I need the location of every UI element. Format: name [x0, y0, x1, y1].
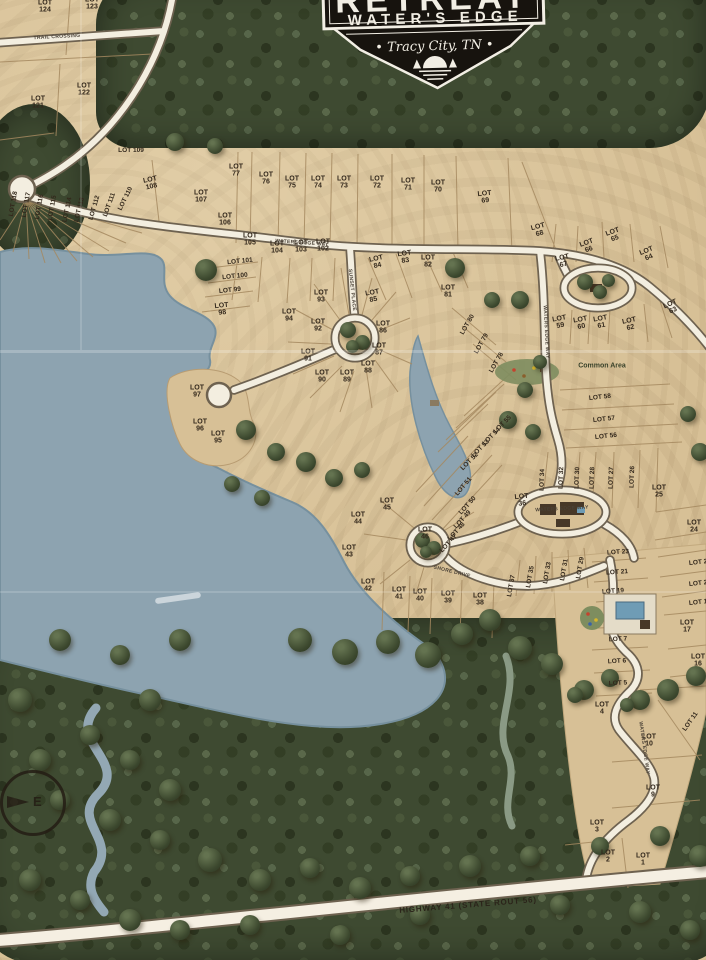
- logo-badge: RETREAT WATER'S EDGE • Tracy City, TN •: [316, 0, 551, 95]
- lot-label: LOT 11: [682, 711, 699, 732]
- lot-label: LOT106: [218, 213, 232, 226]
- lot-label: LOT45: [380, 498, 394, 511]
- lot-label: LOT72: [370, 176, 384, 189]
- lot-label: LOT 47: [439, 534, 458, 555]
- lot-label: LOT 28: [590, 467, 597, 489]
- street-label: WATERS EDGE WAY: [637, 721, 650, 775]
- lot-label: LOT92: [311, 319, 325, 332]
- lot-label: LOT94: [282, 309, 296, 322]
- lot-label: LOT 58: [589, 394, 612, 402]
- lot-label: LOT73: [337, 176, 351, 189]
- lot-label: LOT 114: [62, 197, 73, 223]
- lot-label: LOT 33: [543, 562, 553, 585]
- lot-label: LOT61: [593, 315, 609, 331]
- area-label: Common Area: [578, 363, 626, 370]
- lot-label: LOT82: [421, 255, 435, 268]
- lot-label: LOT 29: [576, 557, 586, 580]
- lot-label: LOT9: [646, 785, 660, 798]
- lot-label: LOT67: [555, 254, 571, 270]
- lot-label: LOT46: [418, 527, 432, 540]
- fold-crease: [0, 591, 706, 593]
- lot-label: LOT71: [401, 178, 415, 191]
- lot-label: LOT85: [365, 289, 381, 305]
- lot-label: LOT39: [441, 591, 455, 604]
- lot-label: LOT89: [340, 370, 354, 383]
- lot-label: LOT 116: [35, 194, 45, 220]
- lot-label: LOT98: [214, 303, 229, 318]
- lot-label: LOT 22: [689, 559, 706, 567]
- fold-crease: [80, 0, 82, 350]
- lot-label: LOT108: [143, 176, 159, 192]
- lot-label: LOT95: [211, 431, 225, 444]
- lot-label: LOT123: [85, 0, 99, 11]
- lot-label: LOT 110: [118, 186, 135, 211]
- lot-label: LOT 37: [507, 575, 517, 598]
- lot-label: LOT63: [663, 299, 681, 317]
- lot-label: LOT 112: [89, 195, 102, 221]
- lot-label: LOT 5: [609, 680, 628, 687]
- lot-label: LOT 51: [455, 477, 474, 498]
- lot-label: LOT36: [514, 494, 529, 509]
- lot-label: LOT86: [376, 321, 390, 334]
- compass-direction-label: E: [33, 794, 42, 809]
- lot-label: LOT 6: [608, 658, 627, 665]
- lot-label: LOT70: [431, 180, 445, 193]
- lot-label: LOT66: [579, 238, 597, 255]
- lot-label: LOT 57: [593, 416, 616, 424]
- lot-label: LOT 27: [609, 467, 616, 489]
- street-label: SUNSET PLACE: [347, 269, 357, 312]
- lot-label: LOT65: [605, 227, 623, 244]
- lot-label: LOT 21: [606, 569, 628, 577]
- lot-label: LOT 26: [630, 466, 637, 488]
- lot-label: LOT2: [601, 850, 615, 863]
- lot-label: LOT90: [315, 370, 329, 383]
- lot-label: LOT 34: [540, 469, 547, 491]
- lot-label: LOT121: [31, 96, 45, 109]
- lot-label: LOT69: [477, 191, 492, 206]
- lot-label: LOT 56: [595, 433, 618, 441]
- street-label: TRAIL CROSSING: [33, 33, 80, 41]
- lot-label: LOT 52: [460, 452, 480, 472]
- lot-label: LOT74: [311, 176, 325, 189]
- street-label: SHORE DRIVE: [433, 565, 471, 580]
- lot-label: LOT83: [397, 250, 413, 265]
- lot-label: LOT 31: [560, 559, 570, 582]
- lot-label: LOT75: [285, 176, 299, 189]
- lot-label: LOT 118: [9, 191, 19, 217]
- lot-label: LOT1: [636, 853, 650, 866]
- lot-label: LOT 35: [526, 566, 536, 589]
- lot-label: LOT3: [590, 820, 604, 833]
- lot-label: LOT38: [473, 593, 487, 606]
- lot-label: LOT64: [639, 246, 657, 264]
- lot-label: LOT96: [193, 419, 207, 432]
- lot-label: LOT107: [194, 190, 208, 203]
- lot-label: LOT44: [351, 512, 365, 525]
- compass-arrow-icon: [7, 796, 29, 808]
- lot-label: LOT105: [243, 233, 257, 246]
- labels-layer: LOT124LOT123LOT122LOT121LOT 109LOT 118LO…: [0, 0, 706, 960]
- lot-label: LOT76: [259, 172, 273, 185]
- lot-label: LOT81: [441, 285, 455, 298]
- lot-label: LOT 32: [559, 467, 566, 489]
- lot-label: LOT41: [392, 587, 406, 600]
- street-label: WATERS EDGE WAY: [535, 505, 589, 514]
- lot-label: LOT 115: [48, 195, 58, 221]
- lot-label: LOT62: [622, 317, 638, 333]
- lot-label: LOT 111: [103, 192, 117, 218]
- lot-label: LOT77: [229, 164, 243, 177]
- lot-label: LOT88: [361, 361, 375, 374]
- lot-label: LOT 117: [22, 192, 32, 218]
- lot-label: LOT84: [369, 255, 385, 271]
- lot-label: LOT 80: [460, 314, 476, 336]
- lot-label: LOT 7: [609, 636, 628, 643]
- lot-label: LOT43: [342, 545, 356, 558]
- lot-label: LOT16: [691, 654, 705, 667]
- lot-label: LOT124: [38, 0, 52, 13]
- lot-label: LOT68: [531, 223, 548, 239]
- lot-label: LOT 109: [118, 148, 144, 154]
- lot-label: LOT 23: [607, 549, 629, 557]
- lot-label: LOT 18: [689, 599, 706, 607]
- fold-crease: [0, 350, 706, 353]
- lot-label: LOT 99: [219, 287, 242, 295]
- plat-map: LOT124LOT123LOT122LOT121LOT 109LOT 118LO…: [0, 0, 706, 960]
- lot-label: LOT 100: [222, 273, 248, 282]
- lot-label: LOT 78: [489, 352, 505, 374]
- lot-label: LOT 101: [227, 258, 253, 267]
- lot-label: LOT24: [687, 520, 701, 533]
- lot-label: LOT59: [552, 315, 568, 331]
- lot-label: LOT25: [652, 485, 666, 498]
- lot-label: LOT17: [680, 620, 694, 633]
- highway-label: HIGHWAY 41 (STATE ROUT 56): [399, 895, 537, 915]
- lot-label: LOT 30: [575, 467, 582, 489]
- badge-location-text: • Tracy City, TN •: [375, 37, 494, 55]
- lot-label: LOT60: [573, 316, 589, 332]
- lot-label: LOT97: [190, 385, 204, 398]
- lot-label: LOT93: [314, 290, 328, 303]
- lot-label: LOT 20: [689, 580, 706, 588]
- lot-label: LOT4: [595, 702, 609, 715]
- compass-rose: E: [0, 770, 66, 836]
